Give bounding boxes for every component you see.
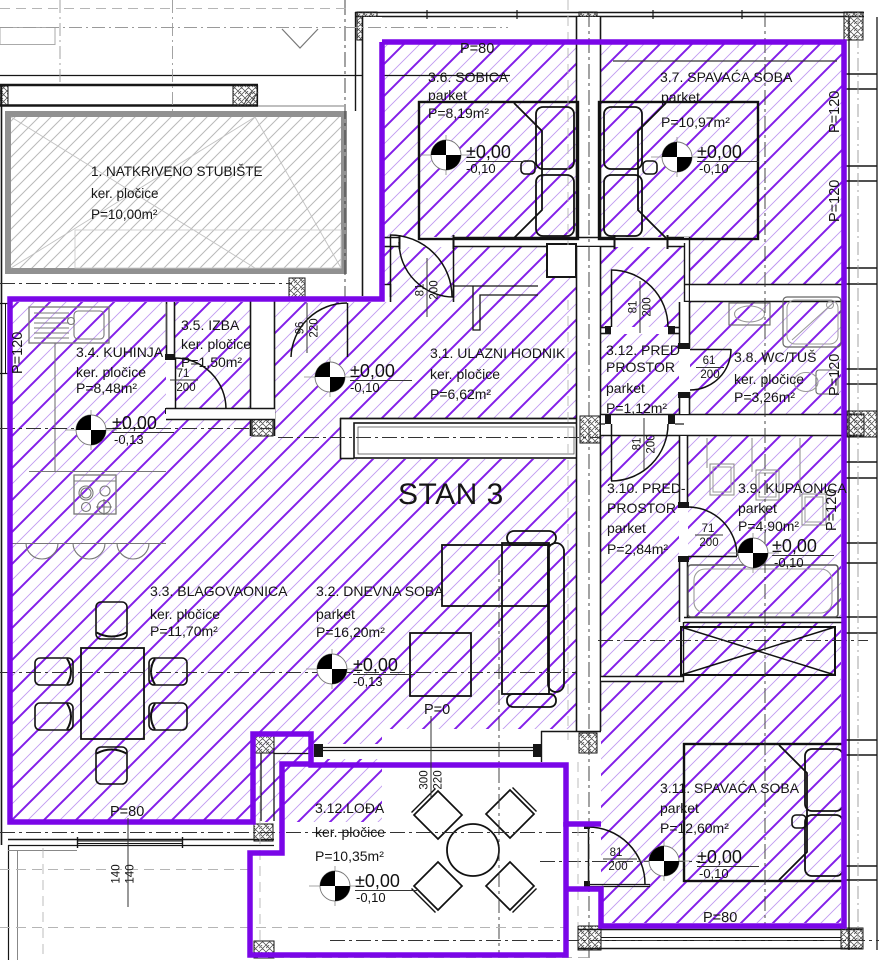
svg-text:±0,00: ±0,00 (112, 413, 157, 433)
svg-text:ker. pločice: ker. pločice (430, 366, 500, 382)
svg-text:3.12.LOĐA: 3.12.LOĐA (315, 800, 385, 816)
svg-text:P=8,48m²: P=8,48m² (76, 380, 137, 396)
svg-text:3.11. SPAVAĆA SOBA: 3.11. SPAVAĆA SOBA (660, 780, 800, 796)
svg-text:P=10,35m²: P=10,35m² (315, 848, 384, 864)
svg-text:140: 140 (111, 864, 123, 883)
svg-text:3.4. KUHINJA: 3.4. KUHINJA (76, 344, 164, 360)
svg-text:-0,10: -0,10 (699, 866, 729, 881)
svg-text:220: 220 (433, 770, 445, 789)
svg-text:P=6,62m²: P=6,62m² (430, 386, 491, 402)
svg-text:P=16,20m²: P=16,20m² (316, 624, 385, 640)
svg-text:-0,13: -0,13 (114, 432, 144, 447)
svg-text:200: 200 (699, 537, 718, 549)
svg-text:ker. pločice: ker. pločice (76, 364, 146, 380)
svg-text:±0,00: ±0,00 (697, 847, 742, 867)
svg-text:parket: parket (316, 606, 355, 622)
svg-text:±0,00: ±0,00 (353, 655, 398, 675)
svg-text:P=12,60m²: P=12,60m² (660, 820, 729, 836)
svg-text:P=120: P=120 (824, 489, 840, 531)
svg-text:1. NATKRIVENO STUBIŠTE: 1. NATKRIVENO STUBIŠTE (91, 164, 263, 179)
svg-text:STAN 3: STAN 3 (398, 478, 504, 511)
svg-text:P=120: P=120 (827, 354, 843, 396)
svg-text:parket: parket (738, 500, 777, 516)
svg-text:3.10. PRED-: 3.10. PRED- (607, 480, 686, 496)
svg-text:P=3,26m²: P=3,26m² (734, 389, 795, 405)
svg-text:P=80: P=80 (110, 804, 144, 820)
svg-text:ker. pločice: ker. pločice (150, 606, 220, 622)
svg-text:P=1,12m²: P=1,12m² (606, 400, 667, 416)
svg-text:P=2,84m²: P=2,84m² (607, 541, 668, 557)
svg-text:ker. pločice: ker. pločice (734, 371, 804, 387)
svg-text:96: 96 (295, 322, 307, 335)
svg-text:P=0: P=0 (424, 702, 450, 718)
svg-text:3.6. SOBICA: 3.6. SOBICA (428, 69, 509, 85)
svg-text:200: 200 (429, 280, 441, 299)
svg-text:200: 200 (608, 861, 627, 873)
svg-text:61: 61 (703, 355, 716, 367)
svg-text:-0,10: -0,10 (699, 161, 729, 176)
svg-text:P=4,90m²: P=4,90m² (738, 518, 799, 534)
svg-text:P=8,19m²: P=8,19m² (428, 105, 489, 121)
svg-text:3.3. BLAGOVAONICA: 3.3. BLAGOVAONICA (150, 583, 288, 599)
svg-text:81: 81 (610, 847, 623, 859)
svg-text:P=120: P=120 (10, 332, 26, 374)
svg-text:220: 220 (309, 318, 321, 337)
svg-text:81: 81 (628, 301, 640, 314)
svg-text:parket: parket (661, 89, 700, 105)
svg-text:P=1,50m²: P=1,50m² (181, 354, 242, 370)
svg-text:±0,00: ±0,00 (466, 142, 511, 162)
svg-text:-0,10: -0,10 (356, 890, 386, 905)
svg-text:PROSTOR: PROSTOR (607, 500, 676, 516)
svg-text:parket: parket (607, 520, 646, 536)
svg-text:±0,00: ±0,00 (350, 361, 395, 381)
svg-text:PROSTOR: PROSTOR (606, 359, 675, 375)
svg-text:ker. pločice: ker. pločice (181, 336, 251, 352)
svg-text:P=80: P=80 (460, 41, 494, 57)
svg-text:71: 71 (177, 368, 190, 380)
svg-text:parket: parket (660, 800, 699, 816)
svg-text:parket: parket (428, 87, 467, 103)
svg-text:200: 200 (176, 382, 195, 394)
svg-text:±0,00: ±0,00 (355, 871, 400, 891)
svg-text:P=10,00m²: P=10,00m² (91, 207, 158, 222)
svg-text:±0,00: ±0,00 (697, 142, 742, 162)
svg-text:3.1. ULAZNI HODNIK: 3.1. ULAZNI HODNIK (430, 345, 566, 361)
svg-text:-0,10: -0,10 (350, 380, 380, 395)
svg-text:ker. pločice: ker. pločice (315, 824, 385, 840)
svg-text:P=120: P=120 (827, 180, 843, 222)
svg-text:3.8. WC/TUŠ: 3.8. WC/TUŠ (734, 349, 816, 365)
svg-text:P=11,70m²: P=11,70m² (150, 623, 218, 639)
svg-text:200: 200 (642, 297, 654, 316)
svg-text:3.7. SPAVAĆA SOBA: 3.7. SPAVAĆA SOBA (660, 69, 793, 85)
svg-text:P=10,97m²: P=10,97m² (661, 114, 730, 130)
svg-text:3.5. IZBA: 3.5. IZBA (181, 317, 240, 333)
svg-text:-0,10: -0,10 (774, 555, 804, 570)
svg-text:-0,13: -0,13 (353, 674, 383, 689)
svg-text:300: 300 (419, 770, 431, 789)
svg-text:71: 71 (702, 523, 715, 535)
svg-text:parket: parket (606, 380, 645, 396)
svg-text:P=80: P=80 (703, 910, 737, 926)
svg-text:P=120: P=120 (827, 91, 843, 133)
svg-text:81: 81 (415, 284, 427, 297)
svg-text:81: 81 (632, 438, 644, 451)
svg-text:140: 140 (125, 864, 137, 883)
svg-text:3.2. DNEVNA SOBA: 3.2. DNEVNA SOBA (316, 583, 444, 599)
svg-text:±0,00: ±0,00 (772, 536, 817, 556)
svg-text:ker. pločice: ker. pločice (91, 186, 159, 201)
svg-text:3.12. PRED: 3.12. PRED (606, 342, 680, 358)
svg-text:200: 200 (700, 369, 719, 381)
svg-text:200: 200 (646, 434, 658, 453)
svg-text:-0,10: -0,10 (466, 161, 496, 176)
